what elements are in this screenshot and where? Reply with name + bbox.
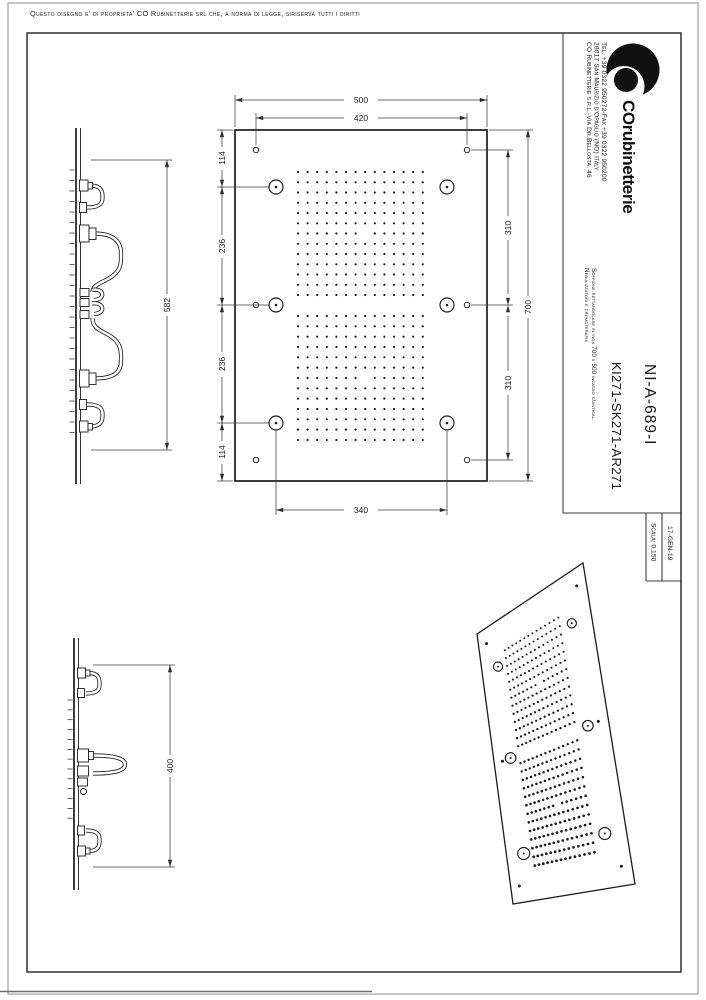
dim-right-chain bbox=[471, 150, 513, 460]
fitting bbox=[78, 689, 85, 698]
product-code: KI271-SK271-AR271 bbox=[609, 362, 624, 490]
fitting bbox=[78, 826, 85, 835]
dim-label-582: 582 bbox=[162, 298, 172, 312]
side-view-long bbox=[76, 128, 121, 484]
dim-340 bbox=[276, 431, 447, 515]
drawing-number: NI-A-689-I bbox=[640, 364, 658, 446]
side-view-short bbox=[74, 638, 125, 890]
dim-label-236-lower: 236 bbox=[217, 357, 227, 371]
fitting-nut bbox=[89, 228, 96, 240]
dim-label-500: 500 bbox=[354, 95, 368, 105]
fitting bbox=[78, 846, 86, 856]
dim-label-114-bottom: 114 bbox=[217, 445, 227, 459]
fitting bbox=[80, 289, 89, 297]
fitting-connector bbox=[81, 789, 87, 795]
drawing-description-line1: Soffione rettangolare in inox 700 x 500 … bbox=[590, 268, 597, 421]
fitting-nut bbox=[88, 183, 93, 190]
fitting-nut bbox=[86, 670, 91, 676]
fitting bbox=[80, 311, 89, 319]
dim-label-310-lower: 310 bbox=[503, 376, 513, 390]
logo-wordmark: COrubinetterie bbox=[619, 100, 638, 213]
date-label: 17-GEN-19 bbox=[666, 526, 673, 560]
fitting bbox=[80, 299, 89, 307]
company-address-line1: CO Rubinetterie s.r.l.-Via Dr.Bellosta, … bbox=[585, 42, 592, 178]
dim-label-700: 700 bbox=[523, 300, 533, 314]
scale-label: Scala: 0.150 bbox=[650, 523, 657, 561]
fitting-nut bbox=[89, 373, 96, 385]
fitting bbox=[78, 766, 89, 776]
fitting bbox=[80, 180, 89, 191]
dim-label-114-top: 114 bbox=[217, 151, 227, 165]
fitting bbox=[80, 370, 90, 387]
fitting bbox=[80, 400, 87, 410]
dim-label-340: 340 bbox=[354, 505, 368, 515]
dim-left-chain bbox=[217, 130, 270, 481]
drawing-sheet: Questo disegno e' di proprieta' CO Rubin… bbox=[0, 0, 706, 1000]
dim-label-420: 420 bbox=[354, 113, 368, 123]
fitting bbox=[78, 749, 89, 762]
dim-label-310-upper: 310 bbox=[503, 221, 513, 235]
company-address-line3: Tel. +39 0322 950272-Fax +39 0322 950200 bbox=[600, 42, 607, 182]
company-logo: COrubinetterie bbox=[604, 44, 660, 214]
fitting-nut bbox=[86, 848, 91, 854]
dim-400 bbox=[93, 665, 175, 867]
perspective-view bbox=[477, 563, 635, 904]
drawing-description-line2: Nebulizzatori e cromoterapia bbox=[583, 268, 590, 342]
fitting-nut bbox=[89, 752, 94, 760]
fitting bbox=[78, 778, 88, 786]
fitting-nut bbox=[88, 424, 93, 431]
logo-moon-small bbox=[614, 68, 638, 92]
fitting bbox=[80, 421, 89, 432]
shower-plate-outline bbox=[235, 130, 487, 481]
company-address-line2: 28017 San Maurizio d'Opaglio (NO) Italy bbox=[593, 42, 600, 171]
nozzles-and-screw-holes bbox=[253, 147, 469, 462]
fitting bbox=[80, 225, 90, 242]
dimension-arrowheads bbox=[165, 98, 530, 867]
plan-view bbox=[235, 130, 487, 481]
drawing-frame bbox=[27, 33, 681, 972]
dim-label-400: 400 bbox=[165, 759, 175, 773]
fitting bbox=[78, 668, 86, 678]
fitting bbox=[80, 203, 87, 213]
dim-label-236-upper: 236 bbox=[217, 239, 227, 253]
spray-hole-grid bbox=[297, 171, 424, 441]
